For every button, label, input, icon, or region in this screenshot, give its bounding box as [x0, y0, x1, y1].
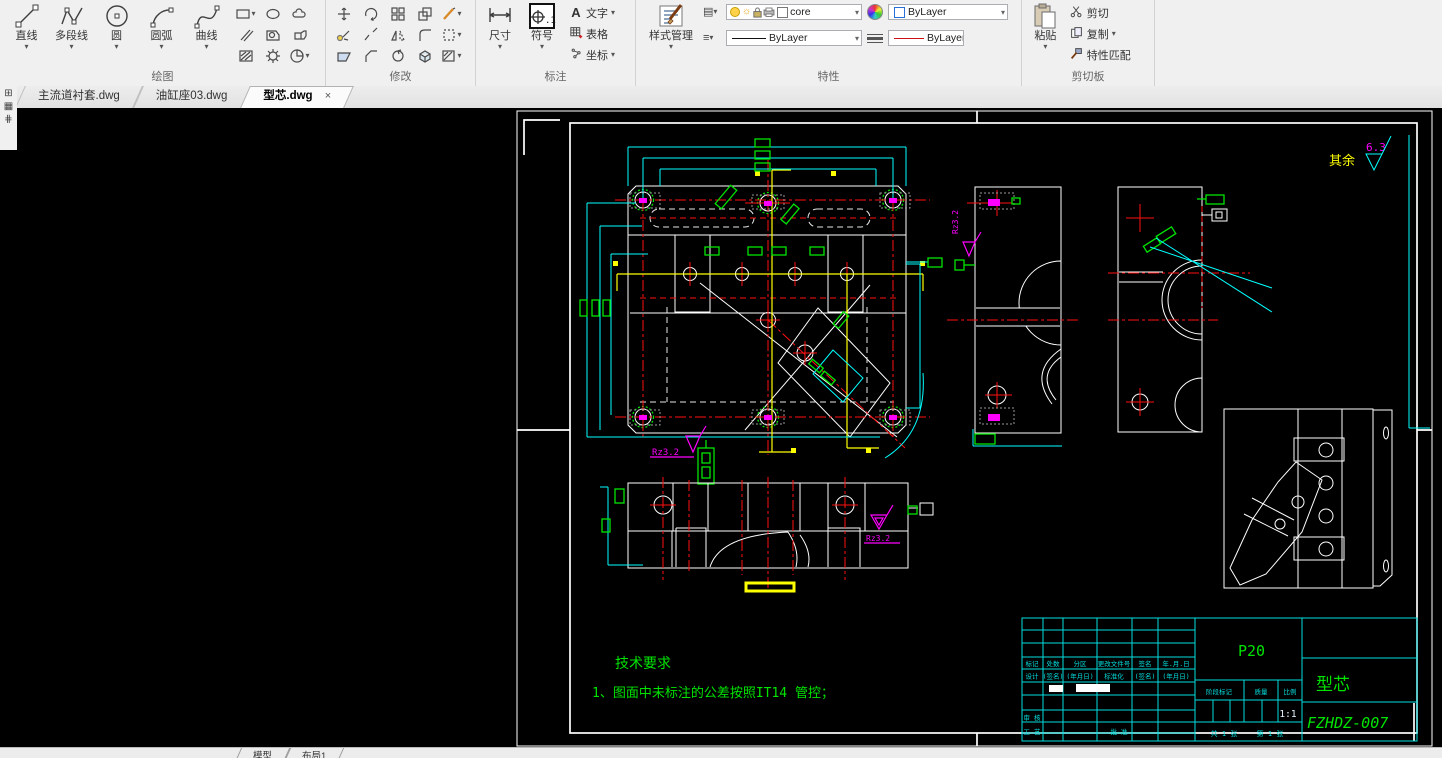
lineweight-sample [894, 38, 924, 39]
copy-icon [1069, 26, 1085, 42]
cut-label: 剪切 [1087, 5, 1109, 21]
color-value: ByLayer [908, 6, 947, 18]
lineweight-list-button[interactable] [866, 30, 884, 46]
ribbon-group-modify: ▾ ▾ ▾ 修改 [326, 0, 476, 86]
roughness-mark-bottom: Rz3.2 [864, 505, 900, 543]
paste-button[interactable]: 粘贴 ▾ [1026, 2, 1065, 51]
lineweight-dropdown[interactable]: ByLayer ▾ [888, 30, 964, 46]
svg-text:.1: .1 [545, 16, 556, 26]
chevron-down-icon: ▾ [853, 34, 859, 43]
svg-text:1、图面中未标注的公差按照IT14 管控；: 1、图面中未标注的公差按照IT14 管控； [592, 685, 834, 701]
match-properties-button[interactable]: 特性匹配 [1069, 44, 1150, 65]
dimension-icon [486, 2, 514, 30]
chevron-down-icon: ▾ [69, 43, 73, 51]
style-manager-icon [657, 2, 685, 30]
svg-text:比例: 比例 [1284, 687, 1297, 696]
color-dropdown[interactable]: ByLayer ▾ [888, 4, 1008, 20]
svg-text:标记: 标记 [1026, 659, 1040, 668]
cad-drawing: Rz3.2 [0, 108, 1442, 758]
chevron-down-icon: ▾ [999, 8, 1005, 17]
rect-array-icon[interactable]: ▾ [438, 24, 465, 45]
section-view-left: Rz3.2 [947, 187, 1080, 446]
gear-icon[interactable] [259, 45, 286, 66]
block-icon[interactable] [286, 24, 313, 45]
left-mini-toolbar: ⊞ ▦ ⋕ [0, 86, 17, 150]
tab-label: 油缸座03.dwg [156, 90, 228, 102]
linetype-sample [732, 38, 766, 39]
coordinate-icon [568, 47, 584, 63]
file-tab-1[interactable]: 主流道衬套.dwg [20, 86, 138, 108]
chevron-down-icon: ▾ [24, 43, 28, 51]
ribbon-filler [1155, 0, 1442, 86]
rectangle-icon[interactable]: ▾ [232, 3, 259, 24]
svg-text:更改文件号: 更改文件号 [1098, 659, 1131, 668]
current-color-swatch [894, 7, 905, 18]
revision-cloud-icon[interactable] [286, 3, 313, 24]
file-tab-2[interactable]: 油缸座03.dwg [138, 86, 246, 108]
copy-label: 复制 [1087, 26, 1109, 42]
linetype-list-button[interactable]: ≡▾ [702, 30, 726, 46]
svg-text:分区: 分区 [1074, 659, 1088, 668]
circle-icon [103, 2, 131, 30]
printer-icon [763, 7, 775, 17]
match-properties-label: 特性匹配 [1087, 47, 1131, 63]
fillet-icon[interactable] [411, 24, 438, 45]
circle-tool-button[interactable]: 圆 ▾ [94, 2, 139, 51]
text-tool-button[interactable]: A 文字 ▾ [568, 2, 631, 23]
signature-mark [1076, 684, 1110, 692]
region-icon[interactable] [259, 24, 286, 45]
grid-icon[interactable]: ▦ [4, 101, 13, 112]
line-icon [13, 2, 41, 30]
break-icon[interactable] [357, 24, 384, 45]
layer-state-button[interactable]: ▤▾ [702, 4, 726, 20]
draw-extra-tools: ▾ ▾ [232, 3, 313, 66]
statusbar: 模型 布局1 [0, 747, 1442, 758]
view-cube-icon[interactable] [411, 45, 438, 66]
svg-text:设计: 设计 [1026, 672, 1040, 681]
arc-icon [148, 2, 176, 30]
svg-text:批 准: 批 准 [1111, 727, 1128, 736]
modify-group-label: 修改 [326, 68, 475, 84]
title-block: 标记 处数 分区 更改文件号 签名 年.月.日 设计 (签名) (年月日) 标准… [1022, 618, 1417, 741]
color-wheel-button[interactable] [866, 4, 884, 20]
section-view-right [1108, 135, 1430, 432]
chevron-down-icon: ▾ [159, 43, 163, 51]
ribbon: 直线 ▾ 多段线 ▾ 圆 ▾ [0, 0, 1442, 87]
table-tool-button[interactable]: 表格 [568, 23, 631, 44]
rotate-icon[interactable] [357, 3, 384, 24]
arc-tool-button[interactable]: 圆弧 ▾ [139, 2, 184, 51]
erase-icon[interactable] [330, 24, 357, 45]
color-wheel-icon [867, 4, 883, 20]
scale-value: 1:1 [1279, 709, 1296, 720]
drawing-canvas[interactable]: Rz3.2 [0, 108, 1442, 758]
layer-dropdown[interactable]: ☼ core ▾ [726, 4, 862, 20]
layer-value: core [790, 6, 810, 18]
linetype-dropdown[interactable]: ByLayer ▾ [726, 30, 862, 46]
chevron-down-icon: ▾ [611, 51, 615, 59]
coordinate-label: 坐标 [586, 47, 608, 63]
scale-icon[interactable] [411, 3, 438, 24]
polyline-icon [58, 2, 86, 30]
app-window: 直线 ▾ 多段线 ▾ 圆 ▾ [0, 0, 1442, 758]
annotate-group-label: 标注 [476, 68, 635, 84]
signature-mark [1049, 685, 1063, 692]
text-icon: A [568, 5, 584, 20]
svg-text:审 核: 审 核 [1024, 713, 1041, 722]
svg-text:标准化: 标准化 [1104, 672, 1124, 681]
match-properties-icon [1069, 47, 1085, 63]
chamfer-icon[interactable] [357, 45, 384, 66]
tab-label: 型芯.dwg [263, 90, 312, 102]
linetype-value: ByLayer [769, 32, 808, 44]
chevron-down-icon: ▾ [498, 43, 502, 51]
lock-icon [752, 7, 763, 18]
cut-icon [1069, 5, 1085, 21]
ribbon-group-clipboard: 粘贴 ▾ 剪切 复制 ▾ [1022, 0, 1155, 86]
chevron-down-icon: ▾ [611, 9, 615, 17]
svg-text:处数: 处数 [1047, 659, 1061, 668]
ribbon-group-draw: 直线 ▾ 多段线 ▾ 圆 ▾ [0, 0, 326, 86]
model-tab[interactable]: 模型 [235, 748, 290, 758]
draw-group-label: 绘图 [0, 68, 325, 84]
spline-icon [193, 2, 221, 30]
symbol-icon: .1 [528, 2, 556, 30]
revolve-icon[interactable] [384, 45, 411, 66]
move-icon[interactable] [330, 3, 357, 24]
file-tab-3-active[interactable]: 型芯.dwg × [245, 86, 349, 108]
chevron-down-icon: ▾ [1043, 43, 1047, 51]
dimension-button[interactable]: 尺寸 ▾ [480, 2, 520, 51]
chevron-down-icon: ▾ [1112, 30, 1116, 38]
svg-text:Rz3.2: Rz3.2 [652, 448, 679, 458]
array-icon[interactable] [384, 3, 411, 24]
coordinate-tool-button[interactable]: 坐标 ▾ [568, 44, 631, 65]
ribbon-group-properties: 样式管理 ▾ ▤▾ ≡▾ ☼ core ▾ [636, 0, 1022, 86]
offset-icon[interactable] [330, 45, 357, 66]
lineweight-icon [867, 30, 883, 46]
part-name: 型芯 [1316, 675, 1350, 695]
close-icon[interactable]: × [325, 90, 331, 102]
chevron-down-icon: ▾ [204, 43, 208, 51]
surface-finish-note: 其余 6.3 [1329, 136, 1391, 170]
roughness-mark-left: Rz3.2 [951, 210, 981, 256]
mirror-icon[interactable] [384, 24, 411, 45]
lineweight-value: ByLayer [927, 32, 964, 44]
line-tool-button[interactable]: 直线 ▾ [4, 2, 49, 51]
ellipse-icon[interactable] [259, 3, 286, 24]
svg-text:工 艺: 工 艺 [1024, 728, 1041, 736]
table-icon [568, 26, 584, 42]
tab-label: 主流道衬套.dwg [38, 90, 120, 102]
copy-button[interactable]: 复制 ▾ [1069, 23, 1150, 44]
chevron-down-icon: ▾ [669, 43, 673, 51]
svg-text:第 1 张: 第 1 张 [1257, 729, 1284, 738]
svg-text:Rz3.2: Rz3.2 [866, 534, 890, 543]
table-list-icon[interactable]: ⋕ [4, 114, 12, 125]
chevron-down-icon: ▾ [540, 43, 544, 51]
svg-text:其余: 其余 [1329, 153, 1355, 169]
svg-text:签名: 签名 [1139, 659, 1152, 668]
bottom-section-view: Rz3.2 [600, 477, 933, 592]
properties-group-label: 特性 [636, 68, 1021, 84]
layer-on-icon [730, 7, 740, 17]
file-tabbar: 主流道衬套.dwg 油缸座03.dwg 型芯.dwg × [0, 86, 1442, 108]
edit-polyline-icon[interactable]: ▾ [438, 3, 465, 24]
style-manager-button[interactable]: 样式管理 ▾ [640, 2, 702, 51]
technical-requirements: 技术要求 1、图面中未标注的公差按照IT14 管控； [592, 656, 834, 701]
clipboard-group-label: 剪切板 [1022, 68, 1154, 84]
svg-text:(年月日): (年月日) [1066, 672, 1093, 681]
text-style-icon[interactable]: ⊞ [4, 88, 12, 99]
text-label: 文字 [586, 5, 608, 21]
title-block-labels: 标记 处数 分区 更改文件号 签名 年.月.日 设计 (签名) (年月日) 标准… [1024, 659, 1297, 738]
selection-dash-boxes [630, 193, 910, 425]
svg-text:Rz3.2: Rz3.2 [951, 210, 960, 234]
layers-icon: ▤ [703, 6, 713, 18]
paste-icon [1031, 2, 1059, 30]
layer-color-swatch [777, 7, 788, 18]
svg-text:(签名): (签名) [1135, 672, 1156, 681]
svg-text:共 1 张: 共 1 张 [1211, 729, 1238, 738]
layer-thaw-icon: ☼ [742, 7, 751, 17]
svg-text:(签名): (签名) [1043, 672, 1064, 681]
double-line-icon[interactable] [232, 24, 259, 45]
svg-text:质量: 质量 [1255, 687, 1269, 696]
svg-text:(年月日): (年月日) [1162, 672, 1189, 681]
ribbon-group-annotate: 尺寸 ▾ .1 符号 ▾ A 文字 [476, 0, 636, 86]
svg-text:年.月.日: 年.月.日 [1162, 659, 1189, 668]
drawing-number: FZHDZ-007 [1307, 714, 1388, 732]
chevron-down-icon: ▾ [853, 8, 859, 17]
table-label: 表格 [586, 26, 608, 42]
svg-text:阶段标记: 阶段标记 [1206, 687, 1233, 696]
symbol-button[interactable]: .1 符号 ▾ [520, 2, 564, 51]
chevron-down-icon: ▾ [114, 43, 118, 51]
hatch-icon[interactable] [232, 45, 259, 66]
detail-view [1224, 409, 1392, 588]
yellow-point-markers [613, 171, 925, 453]
spline-tool-button[interactable]: 曲线 ▾ [184, 2, 229, 51]
yellow-solid-bar [746, 583, 794, 591]
layout-tab[interactable]: 布局1 [284, 748, 345, 758]
hatch-edit-icon[interactable]: ▾ [438, 45, 465, 66]
material-spec: P20 [1238, 642, 1265, 660]
svg-text:技术要求: 技术要求 [615, 656, 671, 672]
plan-view: Rz3.2 [580, 139, 942, 484]
wipeout-icon[interactable]: ▾ [286, 45, 313, 66]
polyline-tool-button[interactable]: 多段线 ▾ [49, 2, 94, 51]
cut-button[interactable]: 剪切 [1069, 2, 1150, 23]
